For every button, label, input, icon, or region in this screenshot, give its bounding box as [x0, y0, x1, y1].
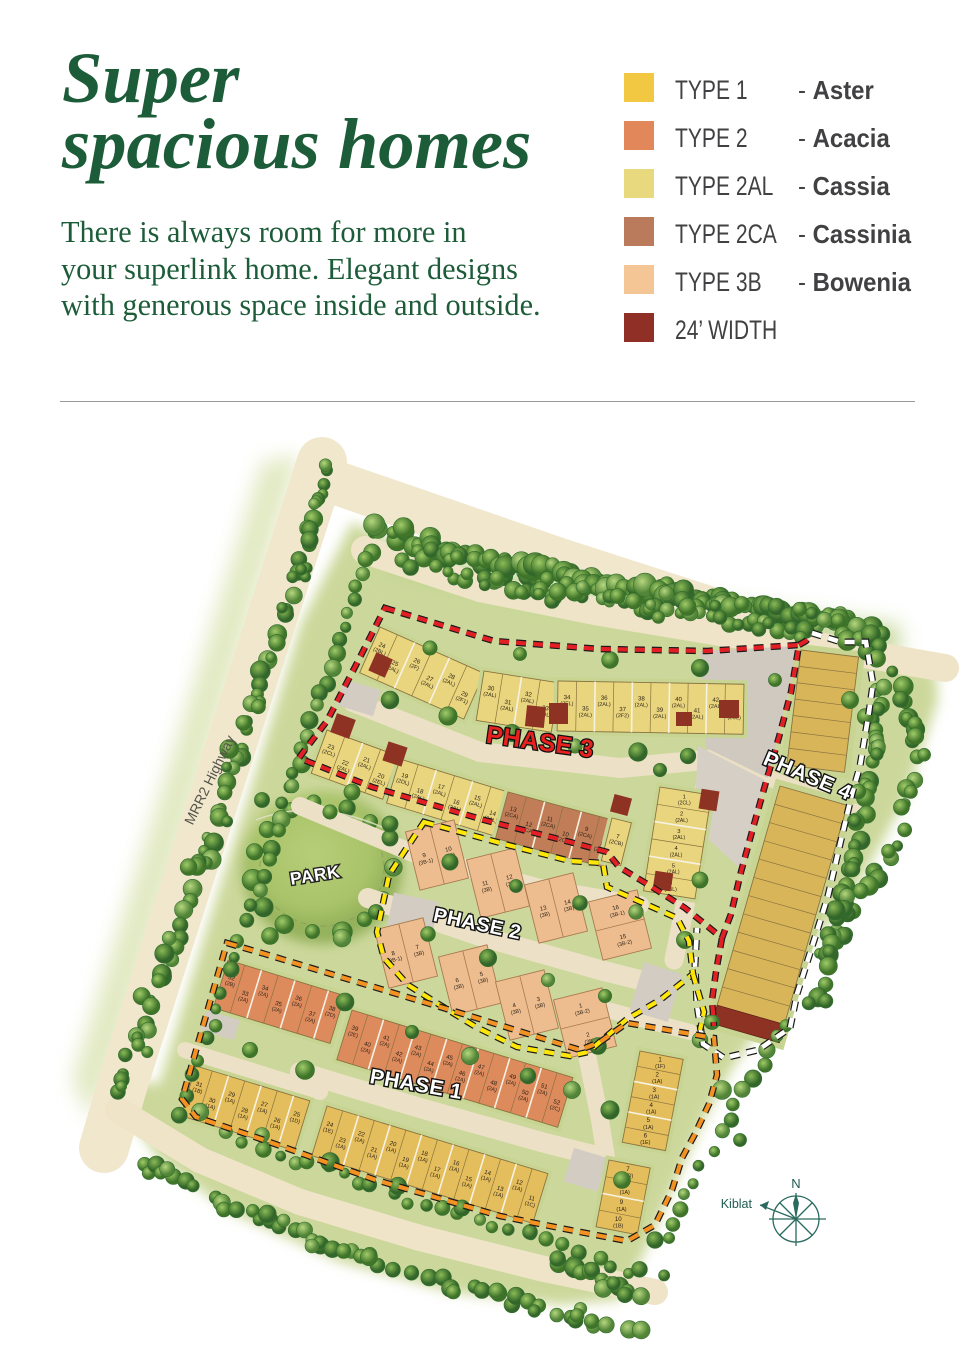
- svg-text:(1A): (1A): [652, 1079, 662, 1085]
- svg-text:34: 34: [564, 694, 572, 701]
- svg-text:(1F): (1F): [655, 1064, 665, 1070]
- svg-text:(2AL): (2AL): [597, 702, 610, 708]
- svg-text:2: 2: [680, 811, 683, 817]
- svg-text:(1A): (1A): [616, 1207, 626, 1213]
- svg-text:10: 10: [615, 1216, 622, 1223]
- svg-text:1: 1: [683, 794, 686, 800]
- svg-text:(2AL): (2AL): [579, 712, 592, 718]
- svg-text:(1A): (1A): [649, 1094, 659, 1100]
- svg-text:41: 41: [694, 707, 702, 714]
- svg-text:(2AL): (2AL): [690, 714, 703, 720]
- svg-text:(2AL): (2AL): [673, 835, 686, 841]
- svg-text:(2AL): (2AL): [670, 852, 683, 858]
- svg-text:(1E): (1E): [640, 1140, 650, 1146]
- svg-text:(1A): (1A): [620, 1190, 630, 1196]
- svg-text:(1A): (1A): [643, 1125, 653, 1131]
- svg-text:(1A): (1A): [646, 1110, 656, 1116]
- svg-text:(1B): (1B): [613, 1224, 623, 1230]
- svg-text:36: 36: [601, 695, 609, 702]
- svg-text:35: 35: [582, 705, 590, 712]
- svg-text:37: 37: [619, 706, 627, 713]
- svg-text:Kiblat: Kiblat: [721, 1197, 753, 1211]
- svg-text:N: N: [791, 1176, 800, 1191]
- svg-text:(2AL): (2AL): [653, 714, 666, 720]
- svg-text:(2AL): (2AL): [675, 818, 688, 824]
- svg-text:(2F2): (2F2): [616, 713, 629, 719]
- svg-text:38: 38: [638, 695, 646, 702]
- svg-text:6: 6: [644, 1132, 648, 1139]
- svg-text:39: 39: [656, 707, 664, 714]
- svg-text:2: 2: [655, 1071, 659, 1078]
- svg-text:42: 42: [712, 697, 720, 704]
- svg-text:3: 3: [677, 829, 680, 835]
- svg-text:4: 4: [650, 1102, 654, 1109]
- svg-text:(2CL): (2CL): [678, 801, 691, 807]
- svg-text:5: 5: [672, 863, 675, 869]
- svg-text:(2AL): (2AL): [672, 703, 685, 709]
- svg-text:40: 40: [675, 696, 683, 703]
- svg-text:(2AL): (2AL): [635, 702, 648, 708]
